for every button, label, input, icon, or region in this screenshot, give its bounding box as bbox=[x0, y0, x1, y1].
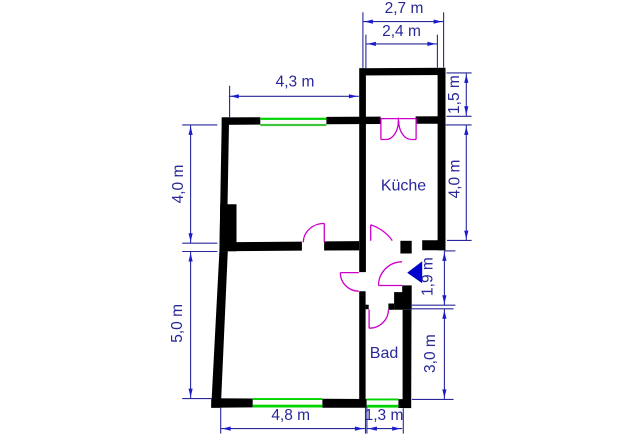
svg-text:Küche: Küche bbox=[381, 177, 426, 194]
svg-text:4,3 m: 4,3 m bbox=[276, 73, 315, 90]
svg-text:1,3 m: 1,3 m bbox=[365, 407, 404, 424]
svg-text:1,5 m: 1,5 m bbox=[446, 75, 463, 114]
svg-text:4,8 m: 4,8 m bbox=[271, 407, 310, 424]
svg-text:1,9 m: 1,9 m bbox=[420, 257, 437, 296]
svg-text:4,0 m: 4,0 m bbox=[447, 160, 464, 199]
svg-text:3,0 m: 3,0 m bbox=[422, 334, 439, 373]
svg-text:4,0 m: 4,0 m bbox=[170, 165, 187, 204]
svg-text:Bad: Bad bbox=[370, 345, 398, 362]
svg-text:2,4 m: 2,4 m bbox=[382, 23, 421, 40]
svg-text:2,7 m: 2,7 m bbox=[385, 0, 424, 17]
svg-text:5,0 m: 5,0 m bbox=[169, 304, 186, 343]
